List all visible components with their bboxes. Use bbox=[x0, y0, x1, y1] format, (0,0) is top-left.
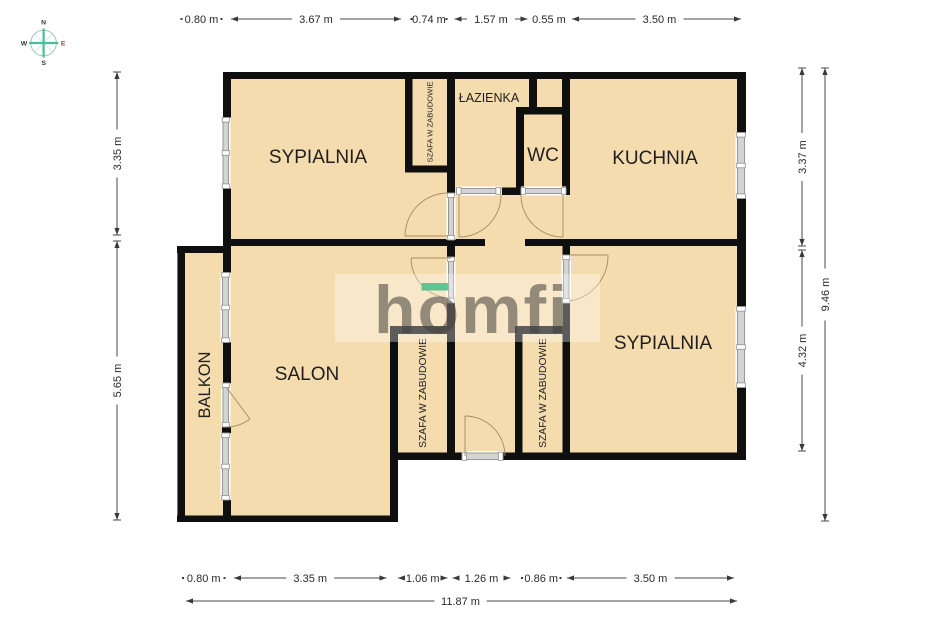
svg-text:1.06 m: 1.06 m bbox=[406, 573, 440, 585]
svg-text:SZAFA W ZABUDOWIE: SZAFA W ZABUDOWIE bbox=[418, 338, 429, 448]
svg-text:3.67 m: 3.67 m bbox=[299, 14, 333, 26]
svg-text:N: N bbox=[41, 20, 46, 27]
svg-text:11.87 m: 11.87 m bbox=[441, 596, 480, 608]
svg-text:0.55 m: 0.55 m bbox=[532, 14, 566, 26]
svg-text:KUCHNIA: KUCHNIA bbox=[612, 148, 698, 169]
svg-text:S: S bbox=[42, 60, 47, 67]
svg-text:SZAFA W ZABUDOWIE: SZAFA W ZABUDOWIE bbox=[426, 81, 435, 162]
svg-text:W: W bbox=[21, 40, 28, 47]
svg-text:4.32 m: 4.32 m bbox=[797, 334, 809, 368]
svg-text:3.35 m: 3.35 m bbox=[293, 573, 327, 585]
svg-text:3.37 m: 3.37 m bbox=[797, 140, 809, 174]
svg-text:BALKON: BALKON bbox=[196, 352, 214, 419]
svg-text:homfi: homfi bbox=[374, 272, 569, 348]
svg-text:3.50 m: 3.50 m bbox=[643, 14, 677, 26]
svg-text:SZAFA W ZABUDOWIE: SZAFA W ZABUDOWIE bbox=[538, 338, 549, 448]
svg-text:9.46 m: 9.46 m bbox=[820, 278, 832, 312]
svg-text:1.57 m: 1.57 m bbox=[474, 14, 508, 26]
svg-text:E: E bbox=[61, 40, 66, 47]
svg-text:5.65 m: 5.65 m bbox=[112, 364, 124, 398]
svg-text:WC: WC bbox=[527, 145, 559, 166]
svg-text:1.26 m: 1.26 m bbox=[465, 573, 499, 585]
svg-text:SALON: SALON bbox=[275, 364, 339, 385]
svg-text:0.80 m: 0.80 m bbox=[185, 14, 219, 26]
svg-text:SYPIALNIA: SYPIALNIA bbox=[614, 333, 713, 354]
svg-text:0.80 m: 0.80 m bbox=[187, 573, 221, 585]
svg-text:SYPIALNIA: SYPIALNIA bbox=[269, 147, 368, 168]
svg-text:0.86 m: 0.86 m bbox=[524, 573, 558, 585]
svg-text:ŁAZIENKA: ŁAZIENKA bbox=[459, 91, 520, 105]
svg-text:0.74 m: 0.74 m bbox=[412, 14, 446, 26]
svg-text:3.35 m: 3.35 m bbox=[112, 137, 124, 171]
svg-text:3.50 m: 3.50 m bbox=[634, 573, 668, 585]
